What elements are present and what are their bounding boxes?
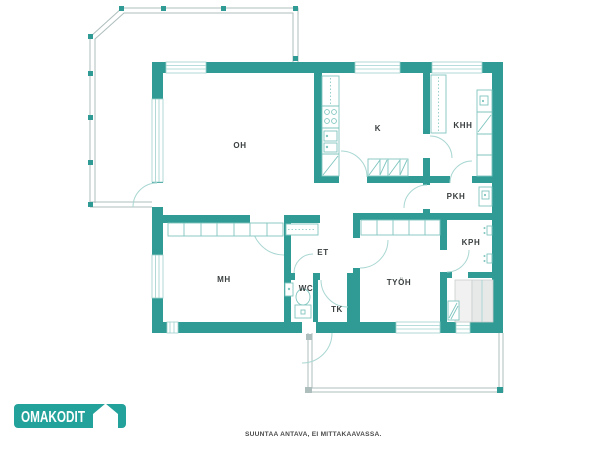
wc-sink-icon <box>285 283 293 296</box>
bathroom-fixtures <box>479 187 492 263</box>
room-label-oh: OH <box>233 141 246 150</box>
terrace-railing <box>305 333 503 393</box>
window-left-mh <box>152 255 163 298</box>
window-bottom-small <box>456 322 470 333</box>
window-left-oh <box>152 99 163 182</box>
window-top-khh <box>432 62 482 73</box>
sauna-heater-icon <box>448 301 459 320</box>
laundry-sink-icon <box>480 96 488 105</box>
room-label-wc: WC <box>299 284 314 293</box>
tyoh-wardrobe <box>361 220 440 235</box>
floorplan-page: OH K KHH PKH KPH ET MH WC TK TYÖH OMAKOD… <box>0 0 600 450</box>
tyoh-door-arc <box>360 240 388 268</box>
room-label-khh: KHH <box>453 121 472 130</box>
sauna-bench <box>472 280 493 322</box>
shower-icon <box>484 254 493 263</box>
toilet-icon <box>295 289 311 318</box>
room-label-et: ET <box>317 248 328 257</box>
window-bottom-corner <box>167 322 178 333</box>
room-label-k: K <box>375 124 381 133</box>
kitchen-door-arc <box>341 151 367 177</box>
window-top-oh <box>166 62 206 73</box>
room-label-tk: TK <box>331 305 343 314</box>
kph-door-arc <box>447 250 469 272</box>
tk-door-arc <box>321 280 348 307</box>
logo: OMAKODIT <box>14 404 126 432</box>
wc-door-arc <box>294 254 313 273</box>
mh-wardrobe <box>168 223 283 236</box>
floor-plan-canvas: OH K KHH PKH KPH ET MH WC TK TYÖH OMAKOD… <box>0 0 600 450</box>
k-khh-door-arc <box>430 136 452 158</box>
window-top-k <box>355 62 400 73</box>
sauna-fixtures <box>448 280 493 322</box>
room-label-kph: KPH <box>462 238 481 247</box>
fridge-freezer-icon <box>368 159 408 176</box>
et-closet <box>286 224 318 235</box>
room-label-pkh: PKH <box>447 192 466 201</box>
shower-icon <box>484 226 493 235</box>
balcony-railing <box>88 6 298 207</box>
window-bottom-tyoh <box>396 322 440 333</box>
pkh-sink-icon <box>479 187 492 206</box>
room-label-tyoh: TYÖH <box>387 278 412 287</box>
logo-text: OMAKODIT <box>21 409 85 426</box>
kitchen-fixtures <box>322 76 408 176</box>
disclaimer-text: SUUNTAA ANTAVA, EI MITTAKAAVASSA. <box>245 431 382 438</box>
room-label-mh: MH <box>217 275 231 284</box>
